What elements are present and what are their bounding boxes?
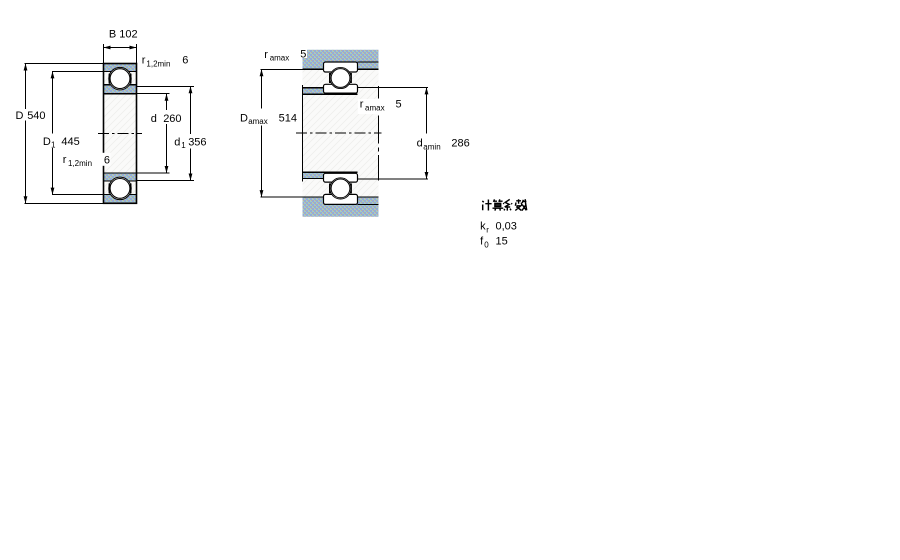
svg-text:286: 286 bbox=[451, 138, 469, 150]
svg-text:1,2min: 1,2min bbox=[146, 60, 170, 69]
svg-text:r: r bbox=[360, 99, 364, 111]
svg-text:260: 260 bbox=[163, 113, 181, 125]
svg-text:1: 1 bbox=[181, 141, 186, 150]
svg-text:D: D bbox=[16, 110, 24, 122]
svg-text:1,2min: 1,2min bbox=[68, 159, 92, 168]
svg-text:514: 514 bbox=[279, 113, 297, 125]
svg-text:5: 5 bbox=[396, 99, 402, 111]
svg-text:r: r bbox=[486, 225, 489, 234]
svg-text:D: D bbox=[43, 136, 51, 148]
svg-text:d: d bbox=[417, 138, 423, 150]
svg-text:amin: amin bbox=[423, 142, 440, 151]
svg-text:r: r bbox=[63, 154, 67, 166]
svg-text:amax: amax bbox=[248, 117, 268, 126]
svg-text:k: k bbox=[480, 221, 486, 233]
svg-text:B 102: B 102 bbox=[109, 29, 138, 41]
svg-text:15: 15 bbox=[496, 236, 508, 248]
svg-text:0: 0 bbox=[484, 240, 489, 249]
svg-text:6: 6 bbox=[182, 55, 188, 67]
svg-text:amax: amax bbox=[270, 54, 290, 63]
svg-text:r: r bbox=[142, 55, 146, 67]
svg-text:d: d bbox=[151, 113, 157, 125]
svg-text:1: 1 bbox=[51, 141, 56, 150]
svg-text:540: 540 bbox=[27, 110, 45, 122]
svg-text:6: 6 bbox=[104, 154, 110, 166]
svg-text:0,03: 0,03 bbox=[496, 221, 517, 233]
svg-text:445: 445 bbox=[61, 136, 79, 148]
svg-text:D: D bbox=[240, 113, 248, 125]
svg-text:5: 5 bbox=[300, 48, 306, 60]
svg-text:amax: amax bbox=[365, 103, 385, 112]
svg-text:d: d bbox=[174, 137, 180, 149]
svg-text:r: r bbox=[264, 49, 268, 61]
svg-text:356: 356 bbox=[188, 137, 206, 149]
